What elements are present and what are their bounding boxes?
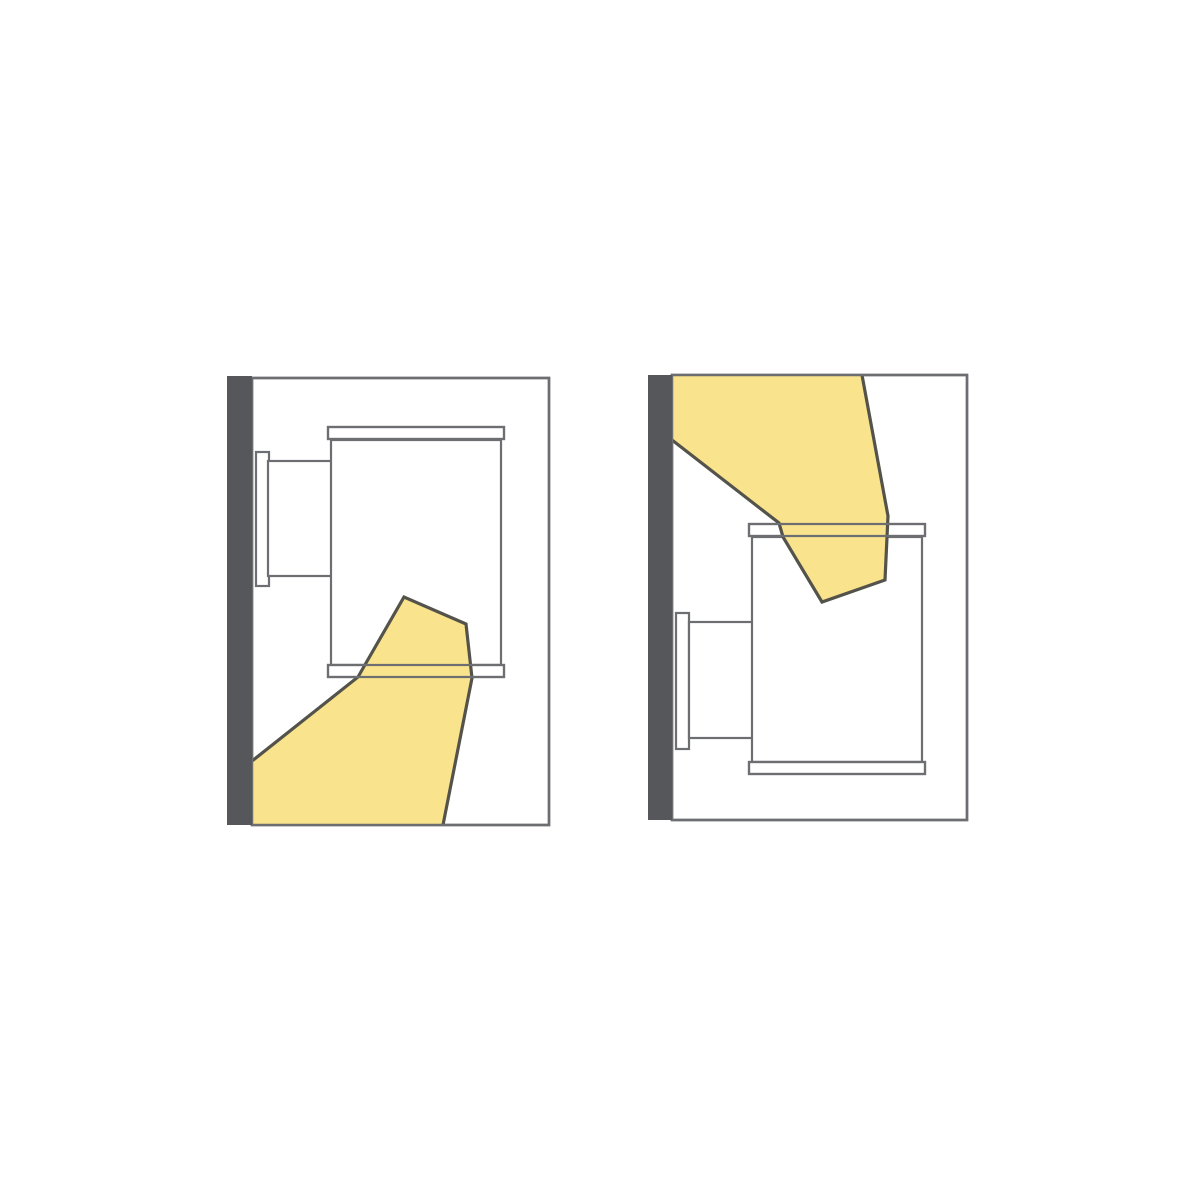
- fixture-top-cap: [328, 427, 504, 439]
- downlight-diagram: [227, 376, 549, 825]
- wall-surface: [648, 375, 672, 820]
- mounting-plate: [676, 613, 689, 749]
- wall-surface: [227, 376, 252, 825]
- mounting-arm: [689, 622, 754, 738]
- wall-sconce-beam-diagram: [0, 0, 1200, 1200]
- mounting-arm: [268, 461, 333, 576]
- lighting-diagram-canvas: [0, 0, 1200, 1200]
- uplight-diagram: [648, 375, 967, 820]
- fixture-bottom-cap: [749, 762, 925, 774]
